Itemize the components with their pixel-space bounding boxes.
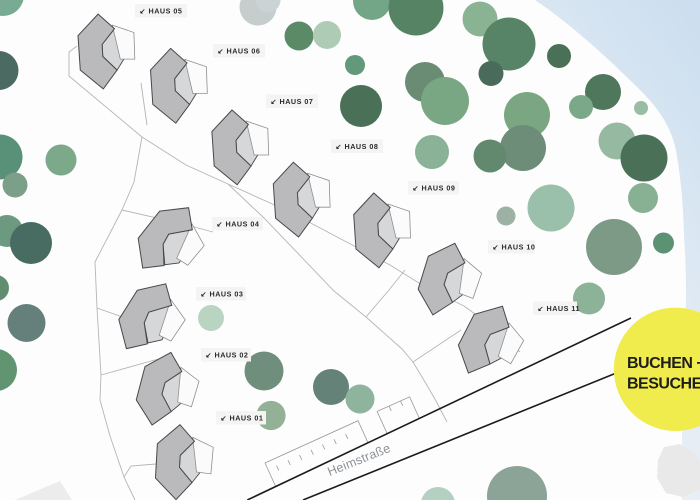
svg-text:BUCHEN +: BUCHEN +: [627, 355, 700, 372]
svg-text:↙ HAUS 08: ↙ HAUS 08: [336, 142, 379, 151]
svg-text:↙ HAUS 02: ↙ HAUS 02: [206, 350, 249, 359]
svg-text:↙ HAUS 01: ↙ HAUS 01: [221, 413, 264, 422]
svg-text:↙ HAUS 10: ↙ HAUS 10: [493, 242, 536, 251]
svg-text:↙ HAUS 05: ↙ HAUS 05: [140, 6, 183, 15]
svg-text:↙ HAUS 09: ↙ HAUS 09: [413, 183, 456, 192]
svg-text:↙ HAUS 07: ↙ HAUS 07: [271, 97, 314, 106]
svg-text:↙ HAUS 11: ↙ HAUS 11: [538, 304, 580, 313]
svg-text:BESUCHEN: BESUCHEN: [627, 376, 700, 393]
svg-text:↙ HAUS 04: ↙ HAUS 04: [217, 219, 260, 228]
svg-text:↙ HAUS 03: ↙ HAUS 03: [201, 289, 244, 298]
svg-text:↙ HAUS 06: ↙ HAUS 06: [218, 46, 261, 55]
